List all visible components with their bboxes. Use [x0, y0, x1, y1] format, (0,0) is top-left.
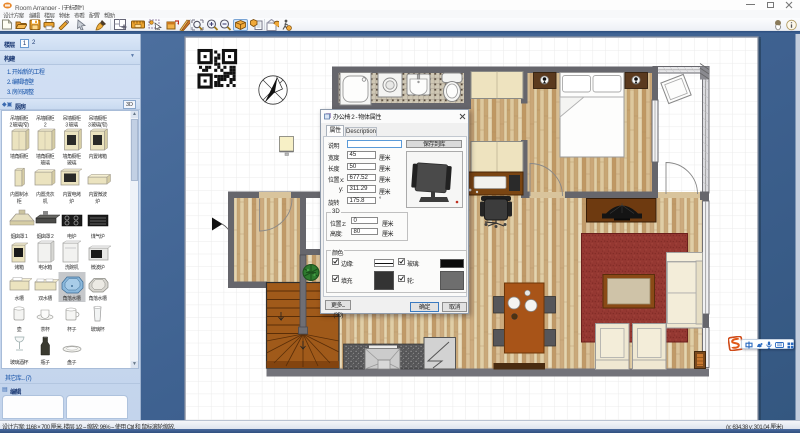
- svg-text:杯子: 杯子: [67, 326, 77, 333]
- svg-text:吊墙橱柜: 吊墙橱柜: [88, 115, 107, 122]
- svg-text:吊墙橱柜: 吊墙橱柜: [10, 115, 29, 122]
- svg-text:2: 2: [44, 123, 47, 129]
- svg-text:茶杯: 茶杯: [40, 326, 50, 333]
- svg-text:内置微波: 内置微波: [88, 191, 107, 198]
- svg-text:内置洗衣: 内置洗衣: [36, 191, 55, 198]
- svg-text:烤箱: 烤箱: [14, 264, 24, 271]
- svg-text:水槽: 水槽: [14, 295, 24, 302]
- svg-text:瓶子: 瓶子: [40, 359, 50, 366]
- svg-text:煤气炉: 煤气炉: [91, 233, 105, 240]
- svg-text:内置电烤: 内置电烤: [62, 191, 81, 198]
- svg-text:内置制冰: 内置制冰: [10, 191, 29, 198]
- svg-text:柜: 柜: [17, 198, 22, 205]
- svg-text:烟囱罩 2: 烟囱罩 2: [37, 233, 54, 240]
- svg-text:玻璃杯: 玻璃杯: [91, 326, 105, 333]
- svg-text:玻璃: 玻璃: [40, 160, 50, 167]
- svg-text:玻璃酒杯: 玻璃酒杯: [10, 359, 29, 366]
- svg-text:吊墙橱柜: 吊墙橱柜: [36, 115, 55, 122]
- svg-text:角落水槽: 角落水槽: [88, 295, 107, 302]
- svg-text:烟囱罩 1: 烟囱罩 1: [11, 233, 28, 240]
- svg-text:2 玻璃(窄): 2 玻璃(窄): [9, 122, 29, 129]
- svg-text:微波炉: 微波炉: [91, 264, 105, 271]
- svg-text:机: 机: [43, 198, 48, 205]
- svg-text:电炉: 电炉: [67, 233, 77, 240]
- svg-text:洗碗机: 洗碗机: [65, 264, 79, 271]
- svg-text:壶: 壶: [17, 326, 22, 333]
- svg-text:3 玻璃: 3 玻璃: [65, 122, 78, 129]
- svg-text:3 玻璃(窄): 3 玻璃(窄): [88, 122, 108, 129]
- svg-text:吊墙橱柜: 吊墙橱柜: [62, 115, 81, 122]
- svg-text:炉: 炉: [69, 198, 74, 205]
- svg-text:墙角橱柜: 墙角橱柜: [10, 153, 29, 160]
- svg-text:内置烤箱: 内置烤箱: [88, 153, 107, 160]
- svg-text:炉: 炉: [95, 198, 100, 205]
- svg-text:双水槽: 双水槽: [38, 295, 52, 302]
- svg-text:电冰箱: 电冰箱: [38, 264, 52, 271]
- svg-text:盘子: 盘子: [67, 359, 77, 366]
- svg-text:墙角橱柜: 墙角橱柜: [36, 153, 55, 160]
- svg-text:墙角橱柜: 墙角橱柜: [62, 153, 81, 160]
- svg-text:角落水槽: 角落水槽: [62, 295, 81, 302]
- svg-text:玻璃: 玻璃: [67, 160, 77, 167]
